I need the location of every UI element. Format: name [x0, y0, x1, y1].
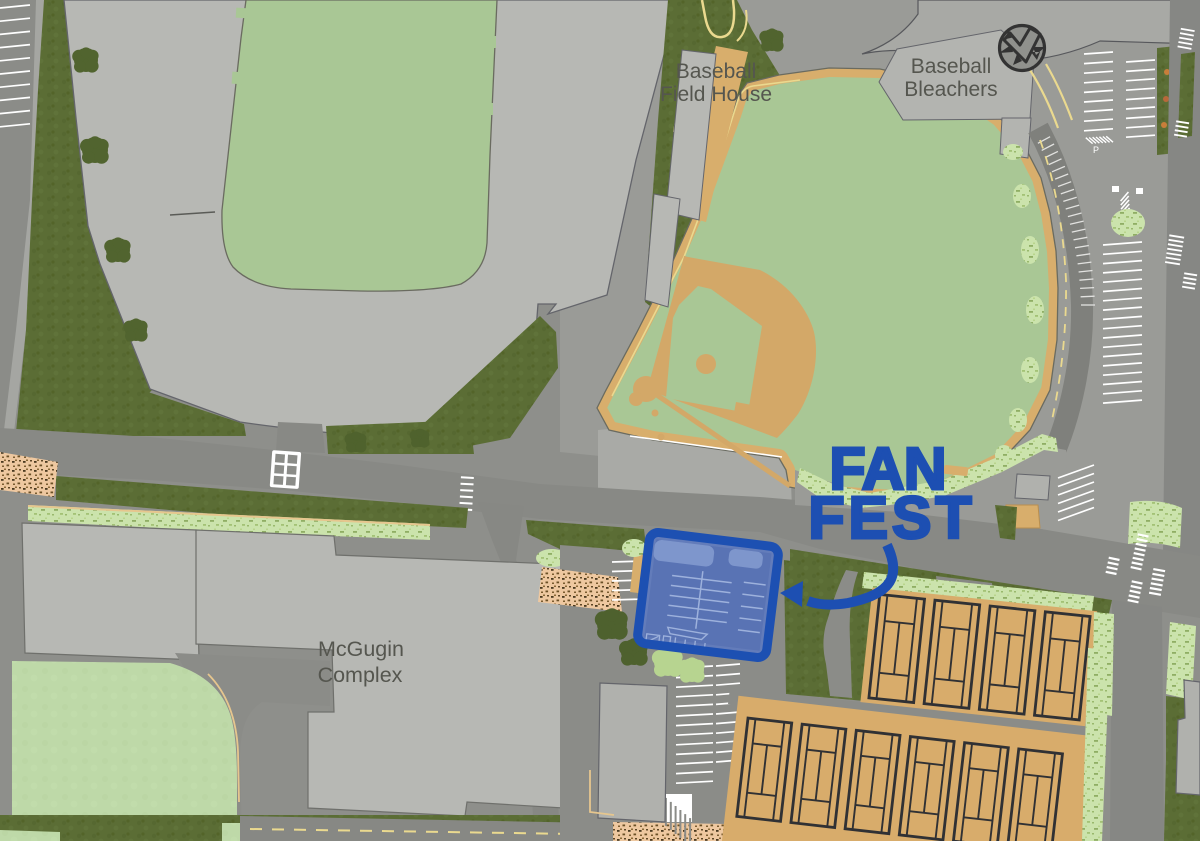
svg-text:McGugin: McGugin [318, 637, 404, 661]
svg-text:P: P [1093, 145, 1099, 155]
svg-text:Bleachers: Bleachers [904, 78, 997, 101]
svg-text:Complex: Complex [318, 663, 403, 687]
svg-text:Field House: Field House [660, 83, 772, 106]
svg-text:Baseball: Baseball [676, 60, 757, 83]
svg-text:Baseball: Baseball [911, 55, 992, 78]
